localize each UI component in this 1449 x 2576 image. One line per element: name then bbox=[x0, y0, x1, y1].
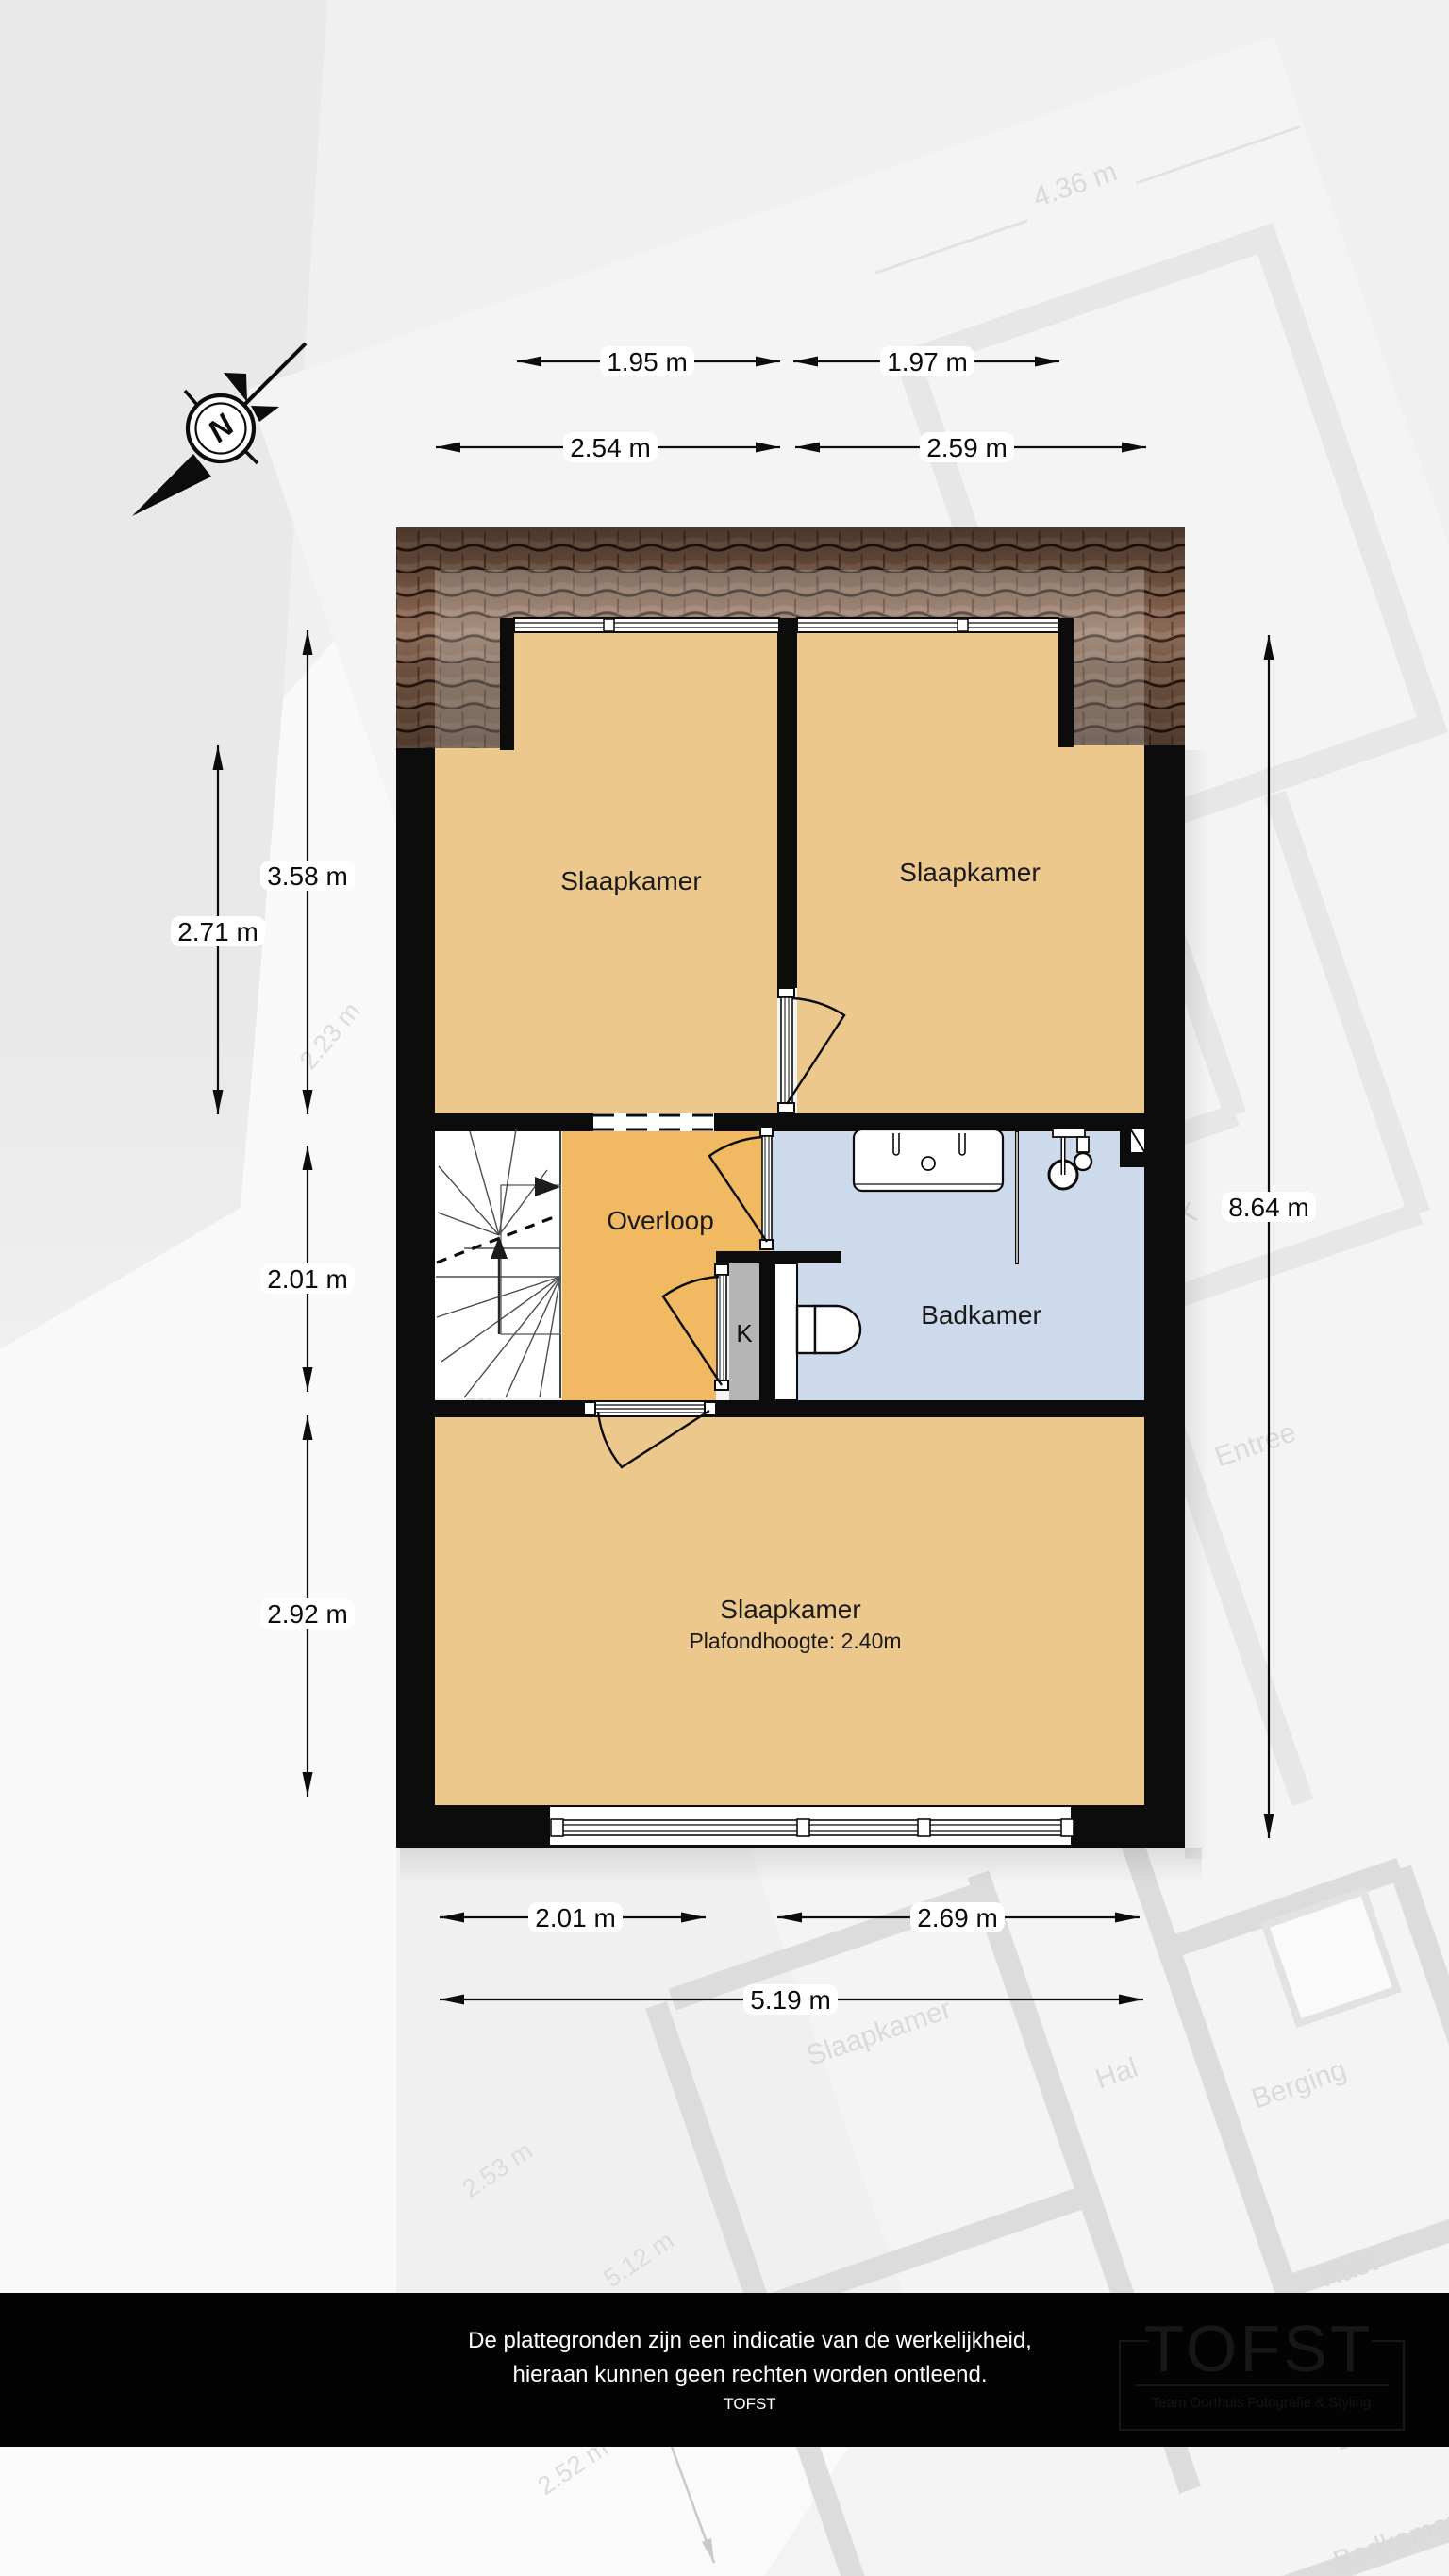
svg-text:Plafondhoogte: 2.40m: Plafondhoogte: 2.40m bbox=[689, 1629, 901, 1653]
svg-text:8.64 m: 8.64 m bbox=[1228, 1193, 1309, 1222]
svg-text:Overloop: Overloop bbox=[607, 1206, 714, 1235]
svg-text:1.95 m: 1.95 m bbox=[607, 347, 688, 376]
svg-text:2.59 m: 2.59 m bbox=[926, 433, 1008, 462]
svg-text:2.54 m: 2.54 m bbox=[570, 433, 651, 462]
svg-text:De plattegronden zijn een indi: De plattegronden zijn een indicatie van … bbox=[468, 2328, 1032, 2353]
svg-text:Slaapkamer: Slaapkamer bbox=[560, 866, 701, 895]
svg-text:2.92 m: 2.92 m bbox=[267, 1599, 348, 1629]
svg-text:3.58 m: 3.58 m bbox=[267, 861, 348, 891]
svg-text:Team Oorthuis Fotografie & Sty: Team Oorthuis Fotografie & Styling bbox=[1152, 2395, 1372, 2411]
svg-text:Slaapkamer: Slaapkamer bbox=[899, 858, 1040, 887]
svg-text:Slaapkamer: Slaapkamer bbox=[720, 1595, 860, 1624]
svg-text:K: K bbox=[736, 1319, 753, 1347]
svg-text:5.19 m: 5.19 m bbox=[750, 1985, 831, 2015]
svg-text:hieraan kunnen geen rechten wo: hieraan kunnen geen rechten worden ontle… bbox=[512, 2362, 987, 2387]
svg-text:2.71 m: 2.71 m bbox=[177, 917, 258, 946]
svg-text:2.01 m: 2.01 m bbox=[267, 1264, 348, 1294]
svg-text:2.01 m: 2.01 m bbox=[535, 1903, 616, 1932]
svg-text:TOFST: TOFST bbox=[1143, 2312, 1373, 2385]
svg-text:TOFST: TOFST bbox=[724, 2395, 775, 2413]
svg-text:2.69 m: 2.69 m bbox=[917, 1903, 998, 1932]
svg-text:Badkamer: Badkamer bbox=[921, 1300, 1041, 1330]
svg-text:1.97 m: 1.97 m bbox=[887, 347, 968, 376]
